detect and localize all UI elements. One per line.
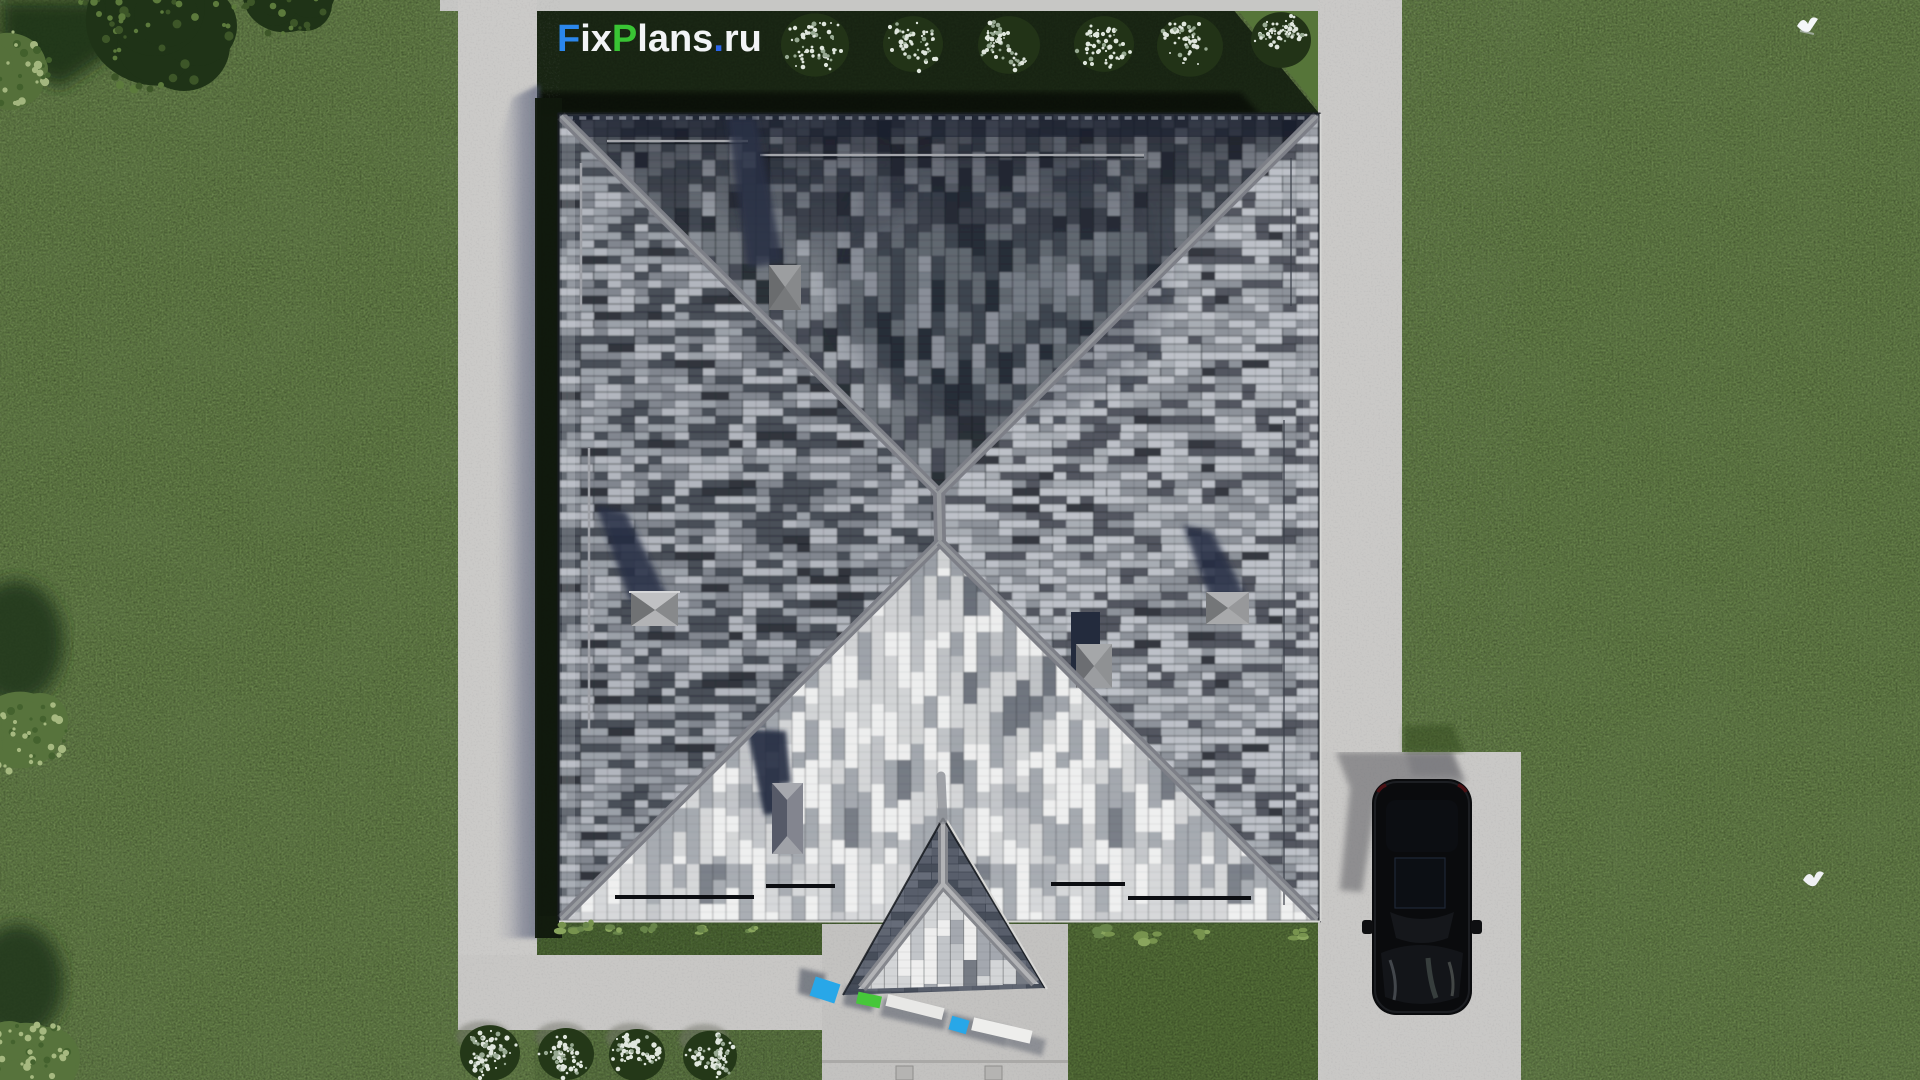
- svg-text:FixPlans.ru: FixPlans.ru: [557, 18, 762, 60]
